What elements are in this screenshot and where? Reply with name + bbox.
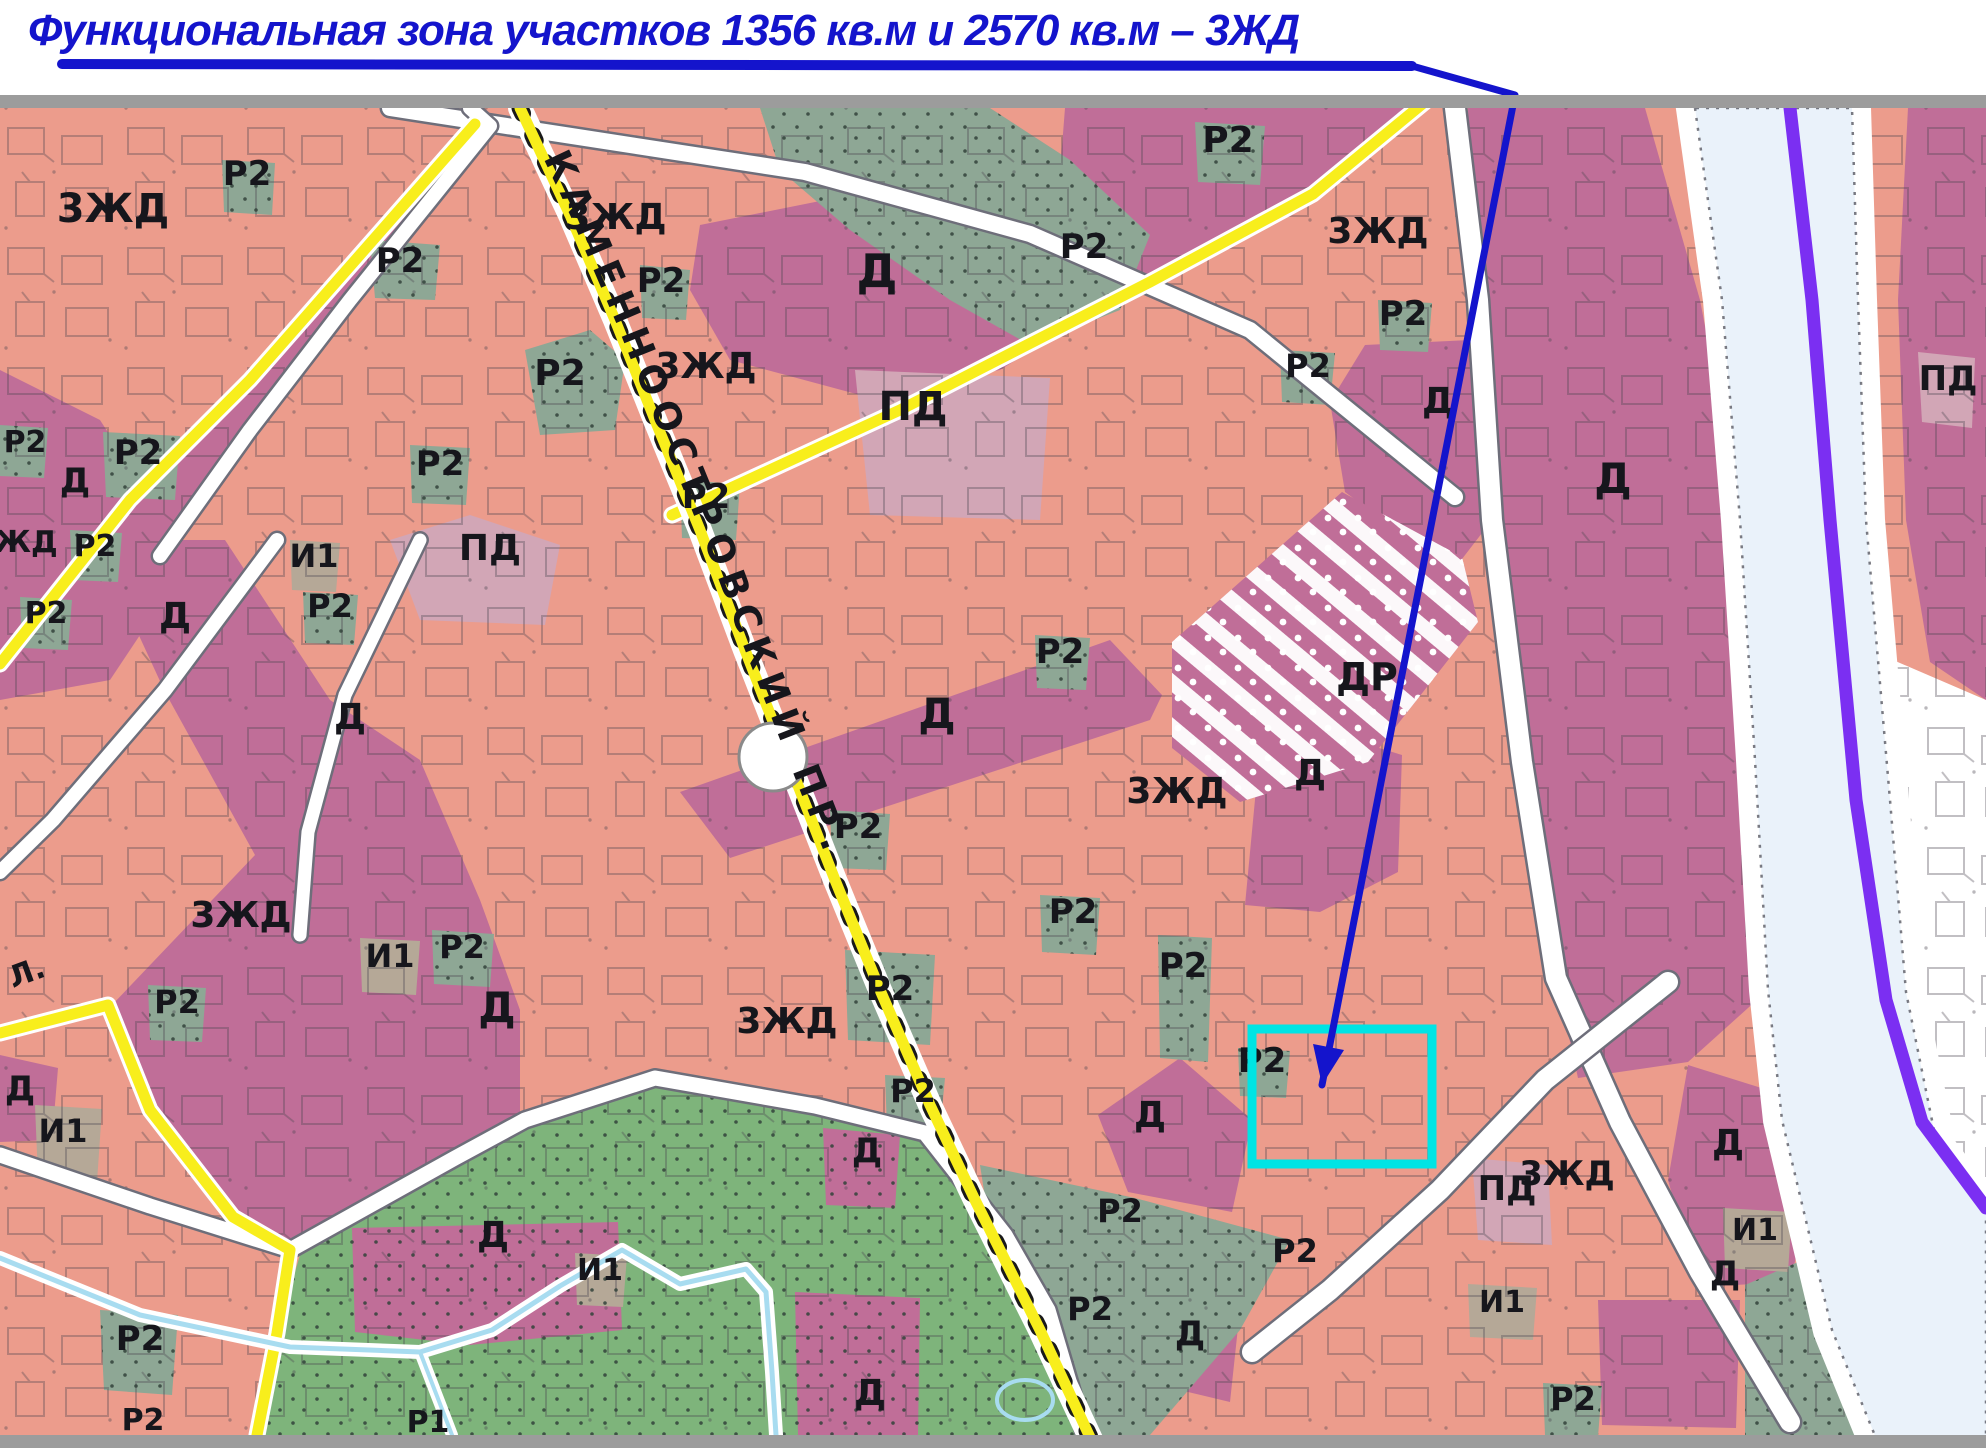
zone-label-3ЖД: 3ЖД (1327, 211, 1428, 252)
zone-label-Д: Д (477, 1215, 509, 1256)
zone-label-Р2: Р2 (1285, 347, 1331, 385)
zone-label-Д: Д (854, 1373, 886, 1414)
zone-label-И1: И1 (365, 937, 414, 975)
zone-label-3ЖД: 3ЖД (1519, 1154, 1615, 1194)
zone-label-Д: Д (334, 697, 366, 738)
zone-label-3ЖД: 3ЖД (655, 346, 756, 387)
zone-label-Р2: Р2 (4, 425, 47, 460)
zone-label-3ЖД: 3ЖД (565, 197, 666, 238)
zone-label-И1: И1 (289, 537, 338, 575)
zone-label-3ЖД: 3ЖД (736, 1001, 837, 1042)
zone-label-ПД: ПД (878, 384, 947, 430)
zone-label-Р2: Р2 (1379, 294, 1428, 334)
zone-label-Р2: Р2 (114, 433, 163, 473)
zone-label-ДР: ДР (1336, 655, 1398, 699)
zone-label-Р2: Р2 (416, 444, 465, 484)
zone-label-Р2: Р2 (1272, 1232, 1318, 1270)
zone-label-Д: Д (852, 1131, 882, 1171)
zone-label-ПД: ПД (1919, 359, 1978, 399)
zone-label-Д: Д (5, 1069, 35, 1109)
bottom-separator-bar (0, 1435, 1986, 1448)
zone-label-Р2: Р2 (1550, 1380, 1596, 1418)
zone-label-Д: Д (918, 689, 955, 738)
zone-label-Р2: Р2 (866, 969, 915, 1009)
zone-label-Р2: Р2 (534, 353, 585, 394)
zone-label-И1: И1 (38, 1112, 87, 1150)
zone-label-Р2: Р2 (223, 154, 272, 194)
zoning-map-page: Функциональная зона участков 1356 кв.м и… (0, 0, 1986, 1448)
zone-label-ЖД: ЖД (0, 525, 58, 560)
zone-label-Р2: Р2 (439, 928, 485, 966)
zone-label-Р2: Р2 (1159, 946, 1208, 986)
zone-label-3ЖД: 3ЖД (190, 895, 291, 936)
zone-label-3ЖД: 3ЖД (57, 186, 169, 232)
zone-label-Р2: Р2 (637, 261, 686, 301)
zone-label-Р2: Р2 (154, 983, 200, 1021)
zone-label-Р2: Р2 (74, 529, 117, 564)
zone-label-Д: Д (159, 596, 191, 637)
page-title: Функциональная зона участков 1356 кв.м и… (28, 6, 1928, 56)
zone-label-Р2: Р2 (376, 241, 425, 281)
zone-label-3ЖД: 3ЖД (1126, 771, 1227, 812)
zone-label-Р2: Р2 (1067, 1290, 1113, 1328)
zone-label-Д: Д (1710, 1254, 1740, 1294)
zone-label-Р2: Р2 (116, 1319, 165, 1359)
zone-label-Д: Д (1594, 454, 1631, 503)
zone-label-Р2: Р2 (834, 807, 883, 847)
zone-label-Р2: Р2 (1238, 1041, 1287, 1081)
zone-label-Д: Д (1175, 1314, 1205, 1354)
zone-label-Р2: Р2 (122, 1403, 165, 1438)
zone-label-Р2: Р2 (1202, 120, 1253, 161)
functional-zone-map: КАМЕННООСТРОВСКИЙ ПР.3ЖДР2Р2Р2ДР23ЖДР2Р2… (0, 0, 1986, 1448)
zone-label-Р2: Р2 (307, 587, 353, 625)
zone-label-ПД: ПД (459, 528, 521, 569)
zone-label-Д: Д (478, 983, 515, 1032)
zone-label-Р2: Р2 (1097, 1192, 1143, 1230)
zone-label-Р2: Р2 (890, 1072, 936, 1110)
zone-label-И1: И1 (1732, 1213, 1778, 1248)
zone-label-И1: И1 (1479, 1285, 1525, 1320)
zone-label-Д: Д (1134, 1095, 1166, 1136)
zone-label-И1: И1 (577, 1253, 623, 1288)
zone-label-Р2: Р2 (1036, 632, 1085, 672)
zone-label-Д: Д (60, 461, 90, 501)
zone-label-Р2: Р2 (682, 477, 731, 517)
zone-label-Р2: Р2 (1049, 892, 1098, 932)
zone-label-Р2: Р2 (25, 596, 68, 631)
top-separator-bar (0, 95, 1986, 108)
zone-label-Д: Д (857, 244, 898, 298)
zone-label-Р2: Р2 (1060, 227, 1109, 267)
zone-label-Д: Д (1294, 753, 1326, 794)
title-underline (62, 64, 1412, 66)
zone-label-Д: Д (1712, 1123, 1744, 1164)
